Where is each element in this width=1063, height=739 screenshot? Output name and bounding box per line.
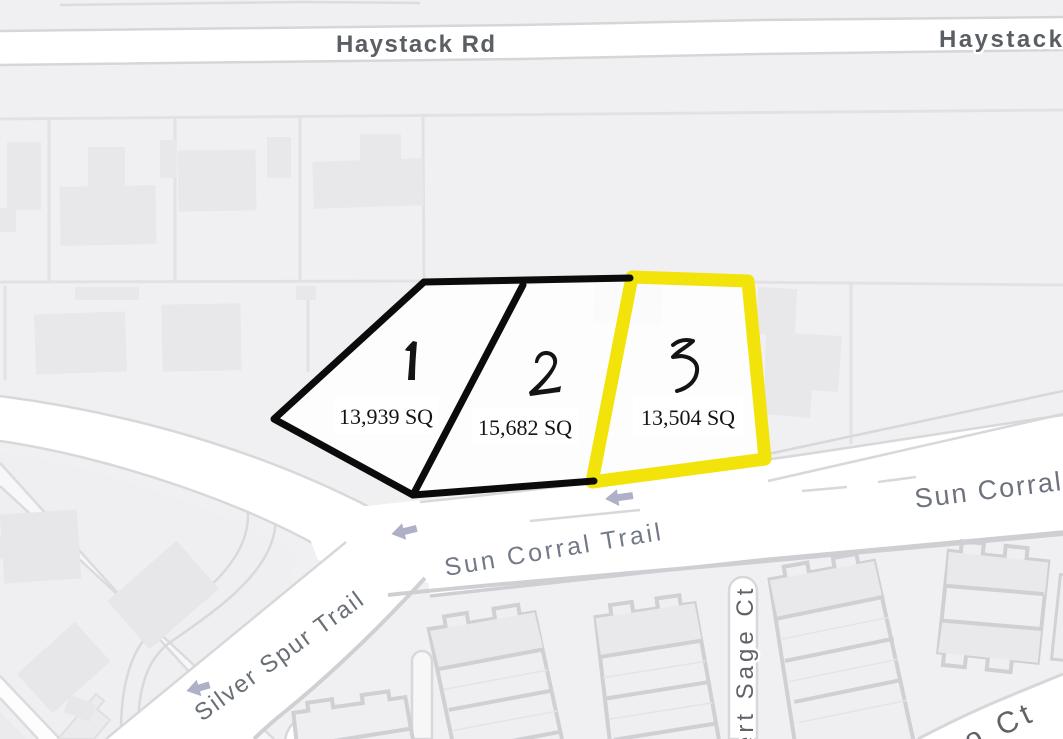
svg-text:Haystack Rd: Haystack Rd: [336, 31, 497, 58]
svg-text:13,504 SQ: 13,504 SQ: [641, 405, 735, 430]
svg-text:13,939 SQ: 13,939 SQ: [339, 404, 433, 429]
svg-text:ert Sage Ct: ert Sage Ct: [732, 585, 759, 739]
svg-text:15,682 SQ: 15,682 SQ: [478, 415, 572, 440]
svg-text:Haystack: Haystack: [939, 26, 1063, 53]
